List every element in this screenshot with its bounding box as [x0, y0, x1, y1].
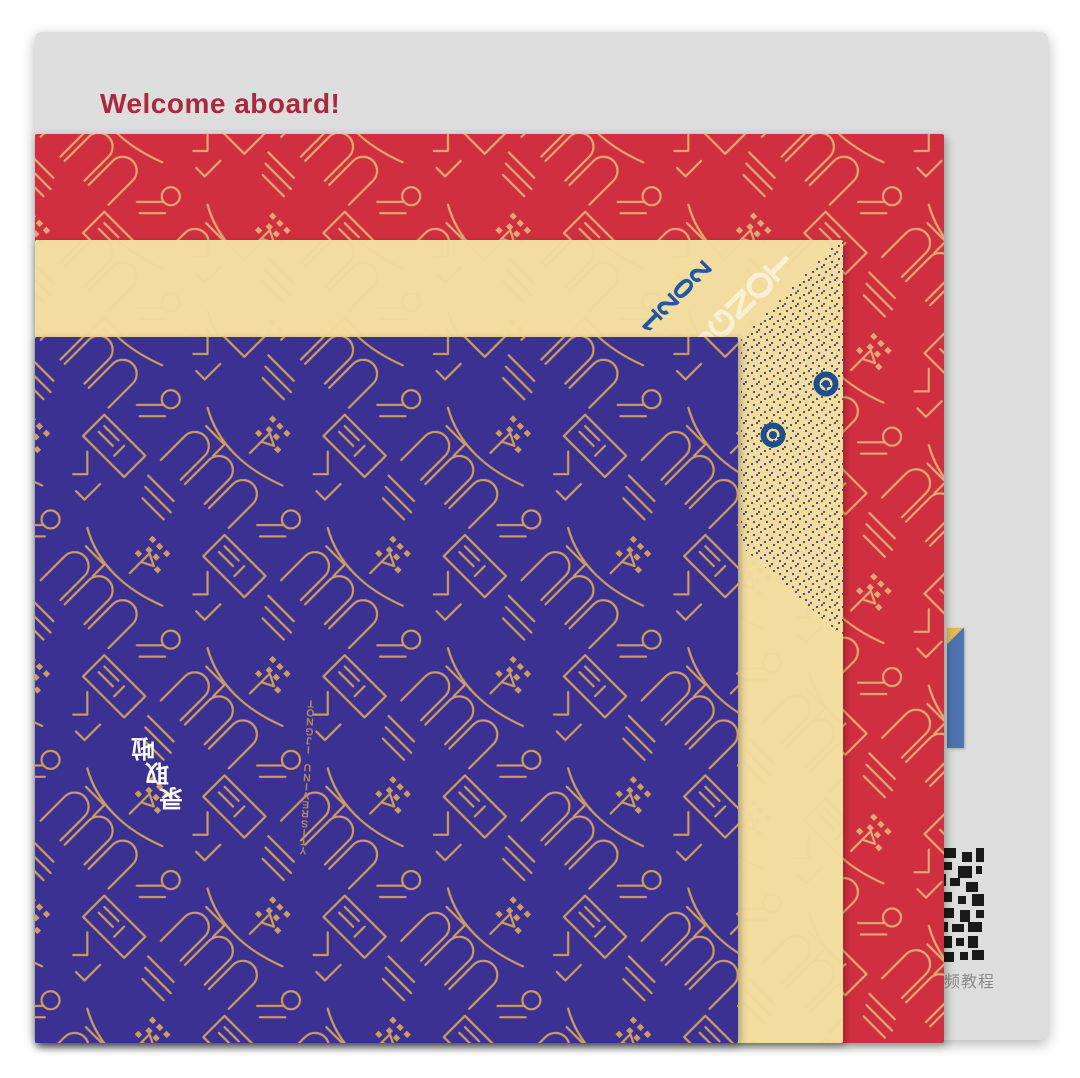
rivet-icon: [764, 426, 783, 445]
blue-building-pattern: [35, 337, 738, 1043]
denim-strip: [947, 628, 964, 748]
welcome-heading: Welcome aboard!: [100, 88, 340, 120]
rivet-icon: [817, 375, 836, 394]
admission-slogan-text: 啦取录: [130, 735, 160, 810]
qr-code-icon: [938, 848, 984, 962]
admission-packet-photo: Welcome aboard!: [0, 0, 1080, 1078]
qr-caption: 频教程: [944, 968, 995, 992]
blue-envelope: 啦取录 TONGJI UNIVERSITY: [35, 337, 738, 1043]
